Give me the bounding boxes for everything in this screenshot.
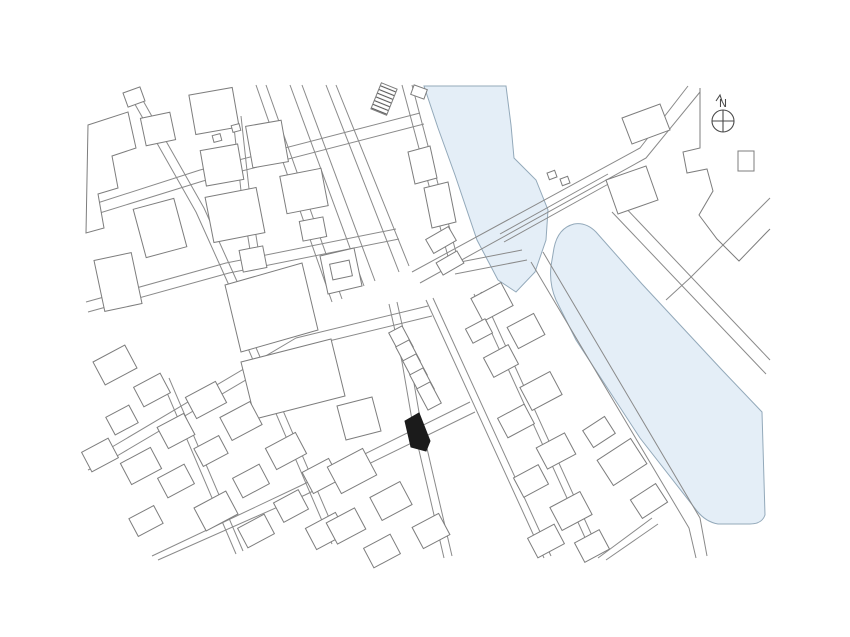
- building-outline: [82, 438, 119, 472]
- building-outline: [212, 134, 222, 143]
- building-outline: [238, 514, 275, 548]
- building-outline: [231, 124, 241, 133]
- building-outline: [536, 433, 576, 469]
- building-outline: [129, 506, 163, 537]
- south-stub-line: [606, 524, 658, 560]
- building-outline: [370, 482, 412, 521]
- building-outline: [120, 447, 161, 484]
- building-outline: [274, 490, 309, 523]
- building-outline: [330, 260, 353, 280]
- building-outline: [200, 144, 244, 186]
- north-label: N: [719, 97, 727, 110]
- building-outline: [507, 313, 545, 348]
- building-outline: [157, 413, 195, 448]
- building-outline: [471, 283, 513, 322]
- building-outline: [327, 448, 376, 493]
- building-outline: [123, 87, 145, 107]
- building-outline: [205, 188, 265, 243]
- south-stub-line: [598, 518, 652, 558]
- building-outline: [528, 524, 565, 558]
- site-building-marker: [405, 413, 430, 451]
- building-outline: [93, 345, 137, 385]
- building-outline: [158, 464, 195, 498]
- building-outline: [547, 170, 557, 179]
- building-outline: [412, 513, 450, 548]
- building-outline: [630, 484, 667, 519]
- building-outline: [466, 319, 493, 343]
- building-outline: [520, 372, 562, 411]
- building-outline: [550, 492, 592, 531]
- building-outline: [364, 534, 401, 568]
- building-outline: [246, 120, 289, 168]
- building-outline: [597, 439, 647, 486]
- building-outline: [280, 168, 328, 213]
- building-outline: [86, 112, 136, 233]
- building-outline: [241, 339, 345, 419]
- building-outline: [133, 198, 187, 257]
- building-outline: [560, 176, 570, 185]
- building-outline: [233, 464, 270, 498]
- building-outline: [134, 373, 171, 407]
- plan-page: N: [0, 0, 850, 637]
- building-outline: [185, 381, 226, 418]
- building-outline: [484, 345, 519, 378]
- building-outline: [583, 417, 616, 448]
- site-plan-map: N: [0, 0, 850, 637]
- building-outline: [408, 146, 437, 184]
- north-arrow-icon: N: [712, 95, 734, 132]
- building-outline: [225, 263, 318, 352]
- building-outline: [106, 405, 138, 435]
- building-outline: [94, 253, 142, 312]
- building-outline: [265, 432, 306, 469]
- building-outline: [606, 166, 658, 214]
- building-outline: [498, 404, 535, 438]
- building-outline: [738, 151, 754, 171]
- river-water: [551, 224, 765, 524]
- building-outline: [140, 112, 175, 146]
- building-outline: [299, 217, 326, 241]
- building-outline: [239, 246, 267, 272]
- building-outline: [424, 182, 456, 228]
- hatched-building: [371, 83, 397, 115]
- building-outline: [514, 465, 549, 498]
- building-outline: [575, 530, 610, 563]
- building-outline: [337, 397, 381, 440]
- building-outline: [194, 436, 228, 467]
- building-outline: [683, 88, 770, 261]
- building-outline: [426, 227, 457, 254]
